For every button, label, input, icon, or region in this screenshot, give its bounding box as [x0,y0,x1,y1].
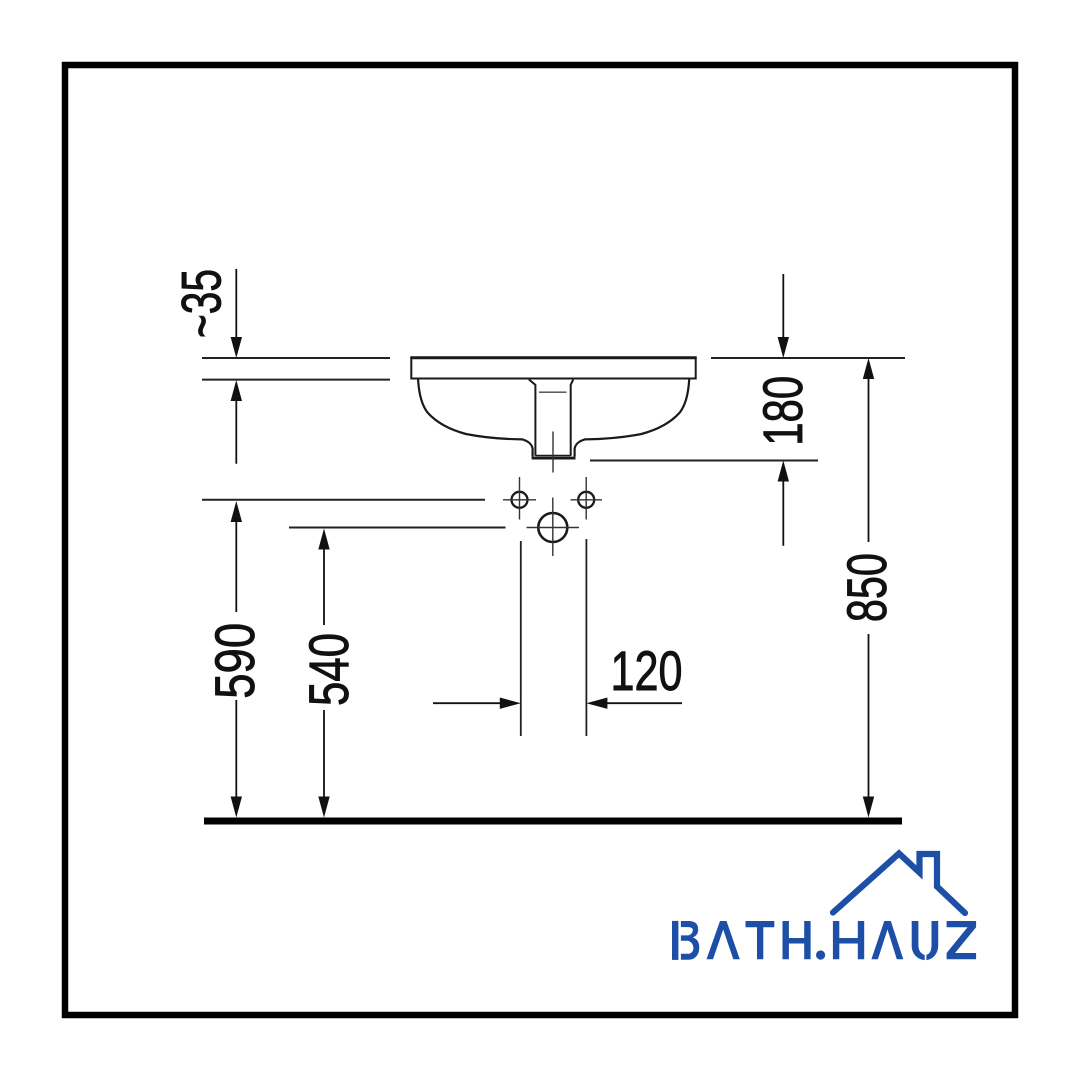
svg-text:590: 590 [203,623,266,699]
svg-text:120: 120 [611,639,683,702]
svg-text:850: 850 [835,553,898,622]
svg-text:180: 180 [751,376,814,446]
svg-text:540: 540 [297,633,360,706]
svg-text:~35: ~35 [170,269,233,338]
